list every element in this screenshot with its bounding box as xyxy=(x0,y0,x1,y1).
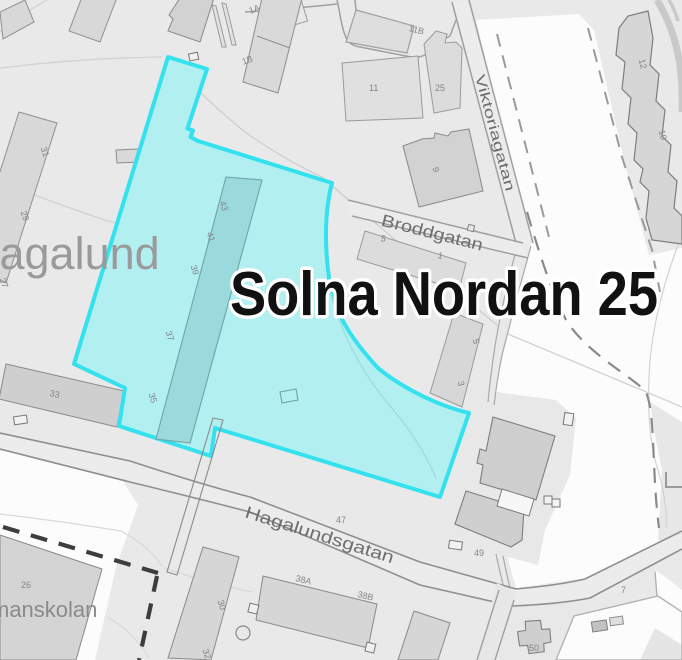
svg-text:49: 49 xyxy=(474,548,484,558)
svg-text:33: 33 xyxy=(49,388,61,400)
svg-text:50: 50 xyxy=(529,643,539,653)
svg-text:11: 11 xyxy=(369,83,378,93)
svg-text:manskolan: manskolan xyxy=(0,597,97,622)
svg-text:47: 47 xyxy=(336,515,346,525)
svg-text:26: 26 xyxy=(21,580,31,590)
svg-text:Hagalund: Hagalund xyxy=(0,228,160,279)
svg-text:7: 7 xyxy=(621,585,626,595)
svg-text:Solna Nordan 25: Solna Nordan 25 xyxy=(230,260,658,329)
svg-text:25: 25 xyxy=(435,83,445,93)
